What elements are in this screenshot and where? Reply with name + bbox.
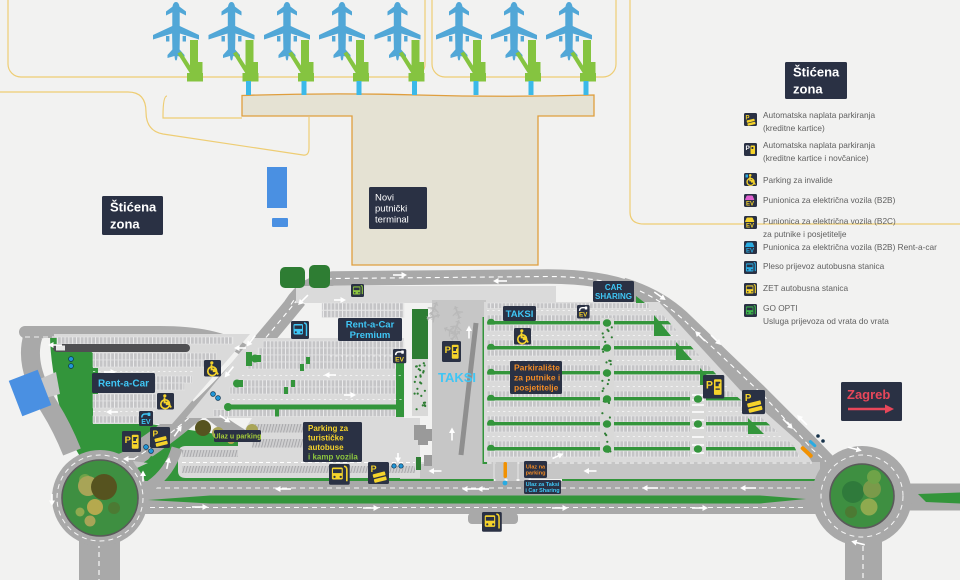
svg-text:Rent-a-Car: Rent-a-Car — [346, 320, 395, 331]
svg-text:P: P — [445, 345, 452, 356]
svg-text:za putnike i posjetitelje: za putnike i posjetitelje — [763, 229, 847, 239]
svg-text:EV: EV — [395, 356, 404, 363]
svg-text:Zagreb: Zagreb — [847, 387, 890, 402]
svg-text:i Car Sharing: i Car Sharing — [525, 488, 559, 494]
svg-text:P: P — [746, 145, 751, 152]
svg-text:zona: zona — [110, 217, 140, 232]
svg-text:autobuse: autobuse — [308, 443, 344, 452]
svg-text:(kreditne kartice): (kreditne kartice) — [763, 123, 825, 133]
svg-text:EV: EV — [746, 249, 754, 255]
svg-text:zona: zona — [793, 82, 823, 97]
svg-text:ZET autobusna stanica: ZET autobusna stanica — [763, 283, 849, 293]
svg-text:Ulaz u parking: Ulaz u parking — [214, 433, 262, 440]
svg-text:Novi: Novi — [375, 192, 394, 203]
svg-text:EV: EV — [579, 312, 588, 319]
svg-text:Automatska naplata parkiranja: Automatska naplata parkiranja — [763, 110, 875, 120]
svg-text:Punionica za električna vozila: Punionica za električna vozila (B2B) — [763, 195, 896, 205]
svg-text:P: P — [153, 429, 159, 439]
svg-text:Parkiralište: Parkiralište — [514, 362, 560, 372]
svg-text:posjetitelje: posjetitelje — [514, 382, 559, 392]
svg-text:P: P — [371, 464, 377, 474]
svg-text:P: P — [706, 379, 713, 391]
svg-text:turističke: turističke — [308, 434, 344, 443]
svg-text:EV: EV — [746, 224, 754, 230]
svg-text:P: P — [125, 435, 132, 446]
svg-text:EV: EV — [141, 419, 151, 426]
svg-text:i kamp vozila: i kamp vozila — [308, 453, 358, 462]
svg-text:Štićena: Štićena — [793, 65, 840, 80]
svg-text:GO OPTI: GO OPTI — [763, 303, 798, 313]
svg-text:terminal: terminal — [375, 214, 409, 225]
svg-text:(kreditne kartice i novčanice): (kreditne kartice i novčanice) — [763, 153, 869, 163]
svg-text:CAR: CAR — [605, 283, 623, 292]
svg-text:Pleso prijevoz autobusna stani: Pleso prijevoz autobusna stanica — [763, 261, 885, 271]
svg-text:SHARING: SHARING — [595, 292, 632, 301]
svg-text:P: P — [745, 393, 752, 404]
svg-text:TAKSI: TAKSI — [438, 370, 476, 385]
svg-text:Punionica za električna vozila: Punionica za električna vozila (B2C) — [763, 216, 896, 226]
svg-text:Punionica za električna vozila: Punionica za električna vozila (B2B) Ren… — [763, 242, 937, 252]
svg-text:parking: parking — [526, 470, 546, 476]
svg-text:Automatska naplata parkiranja: Automatska naplata parkiranja — [763, 140, 875, 150]
svg-text:Premium: Premium — [350, 330, 391, 341]
svg-text:putnički: putnički — [375, 203, 407, 214]
svg-text:EV: EV — [746, 202, 754, 208]
svg-text:za putnike i: za putnike i — [514, 372, 560, 382]
svg-text:Štićena: Štićena — [110, 200, 157, 215]
svg-text:Rent-a-Car: Rent-a-Car — [98, 379, 149, 390]
svg-text:TAKSI: TAKSI — [506, 309, 534, 320]
svg-text:Parking za: Parking za — [308, 424, 349, 433]
svg-text:Parking za invalide: Parking za invalide — [763, 175, 833, 185]
svg-text:Usluga prijevoza od vrata do v: Usluga prijevoza od vrata do vrata — [763, 316, 889, 326]
